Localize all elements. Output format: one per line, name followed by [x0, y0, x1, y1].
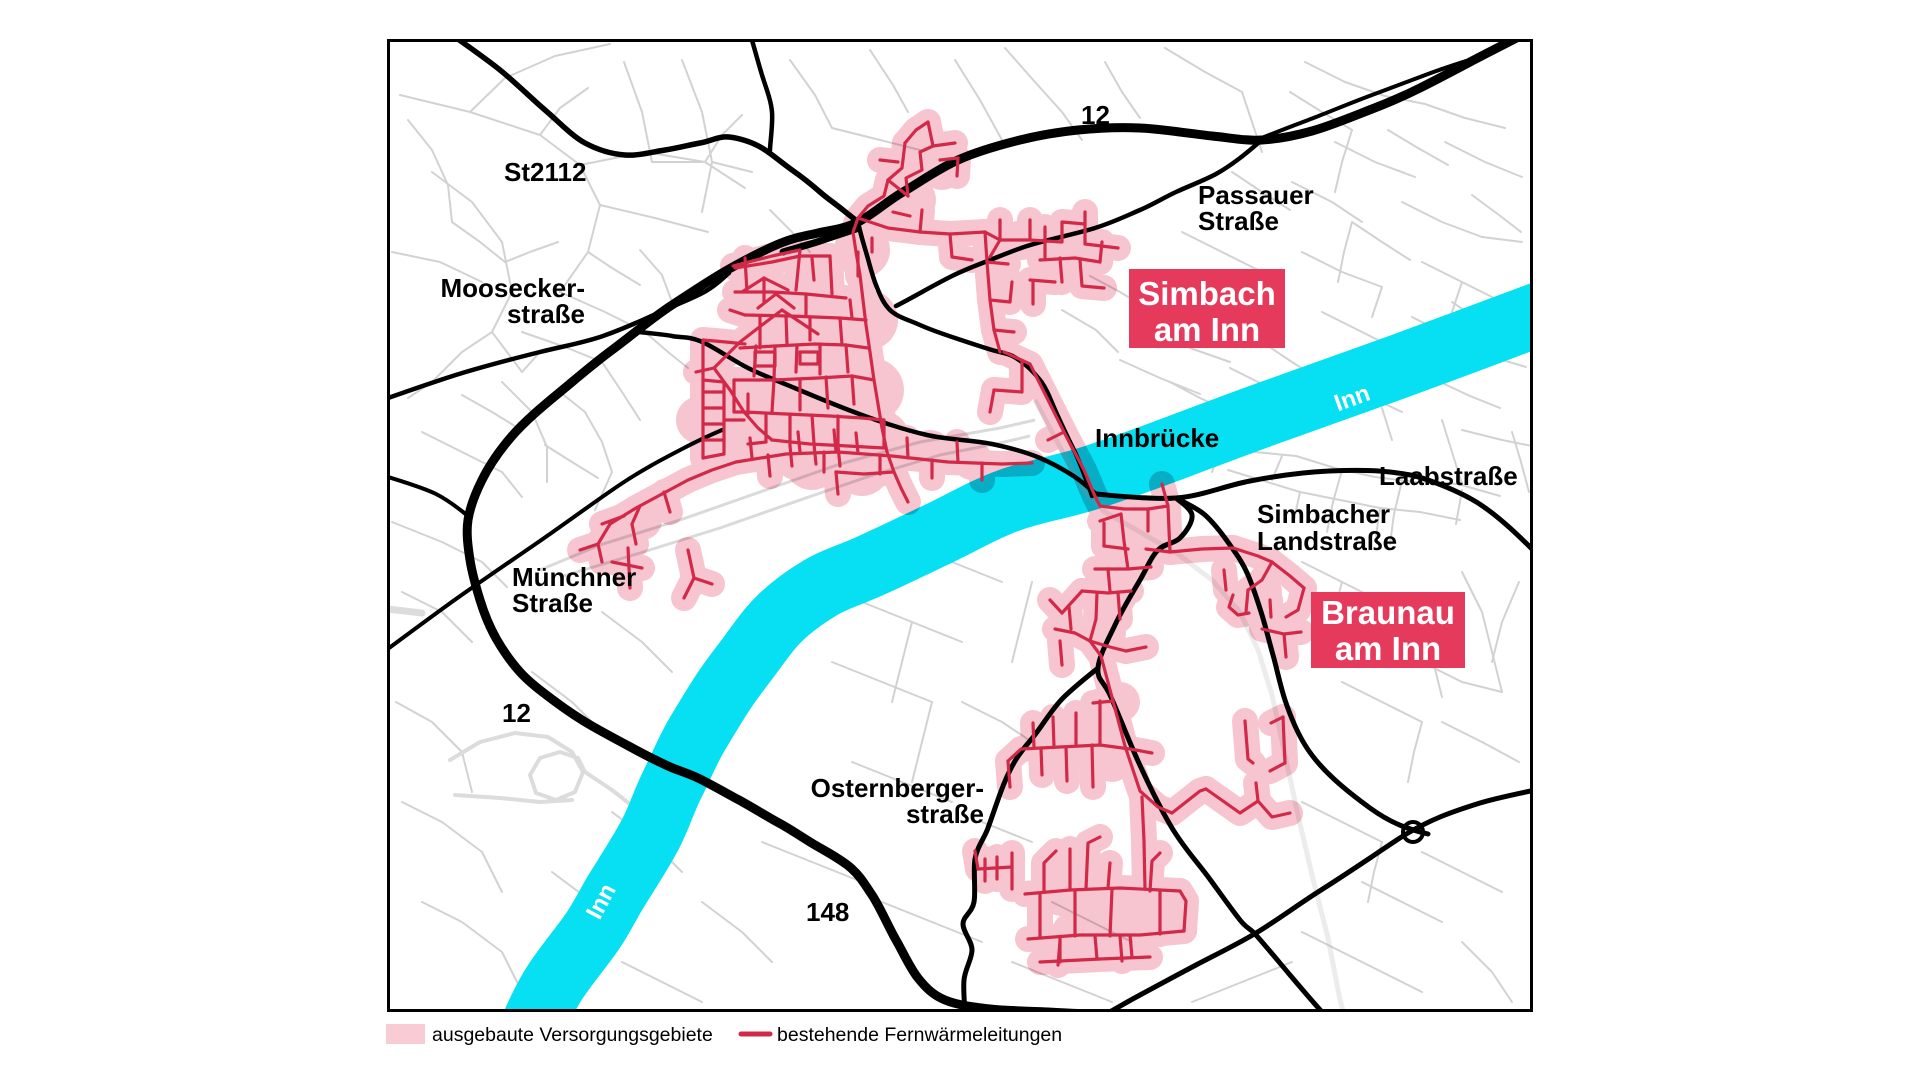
svg-text:straße: straße: [507, 299, 585, 329]
svg-text:Straße: Straße: [512, 588, 593, 618]
svg-text:12: 12: [1081, 100, 1110, 130]
svg-text:Landstraße: Landstraße: [1257, 526, 1397, 556]
svg-text:Braunau: Braunau: [1321, 594, 1455, 631]
svg-text:Innbrücke: Innbrücke: [1095, 423, 1219, 453]
svg-text:Simbach: Simbach: [1138, 275, 1276, 312]
svg-text:Straße: Straße: [1198, 206, 1279, 236]
svg-text:bestehende Fernwärmeleitungen: bestehende Fernwärmeleitungen: [777, 1024, 1062, 1046]
svg-text:Simbacher: Simbacher: [1257, 499, 1390, 529]
svg-text:12: 12: [502, 698, 531, 728]
svg-text:am Inn: am Inn: [1335, 630, 1441, 667]
svg-text:St2112: St2112: [504, 157, 586, 187]
svg-text:straße: straße: [906, 799, 984, 829]
svg-text:am Inn: am Inn: [1154, 311, 1260, 348]
svg-text:148: 148: [806, 897, 849, 927]
svg-text:Laabstraße: Laabstraße: [1379, 461, 1518, 491]
svg-text:ausgebaute Versorgungsgebiete: ausgebaute Versorgungsgebiete: [432, 1024, 713, 1046]
